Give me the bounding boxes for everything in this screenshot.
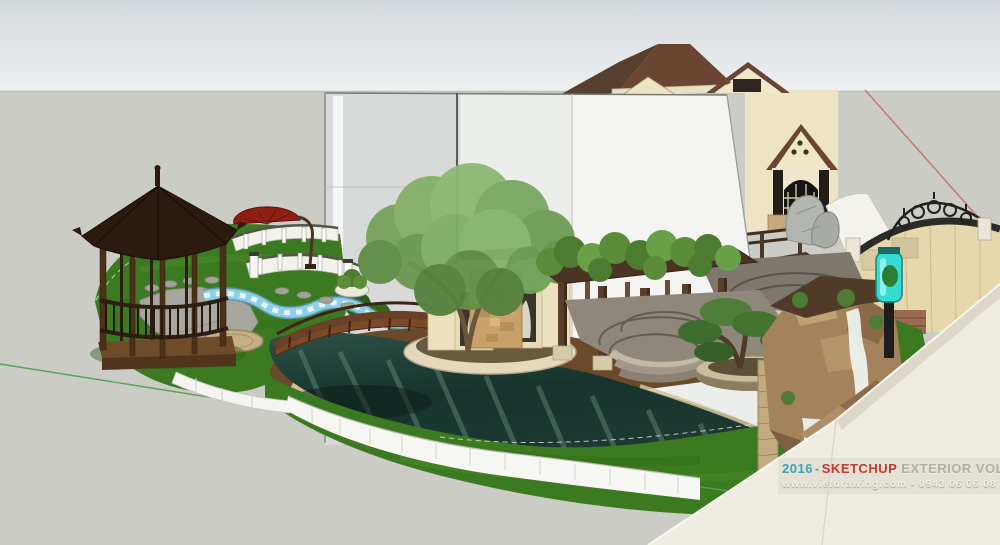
watermark-separator: - (813, 461, 822, 476)
watermark-title: 2016-SKETCHUPEXTERIOR VOL.16 (782, 461, 996, 477)
sky (0, 0, 1000, 93)
watermark-title-rest: EXTERIOR VOL.16 (897, 461, 1000, 476)
render-canvas: 2016-SKETCHUPEXTERIOR VOL.16 www.vietdra… (0, 0, 1000, 545)
watermark-year: 2016 (782, 461, 813, 476)
watermark-brand: SKETCHUP (822, 461, 898, 476)
watermark-contact: www.vietdrawing.com - 0943 06 06 08 (782, 478, 996, 491)
watermark: 2016-SKETCHUPEXTERIOR VOL.16 www.vietdra… (778, 458, 1000, 494)
